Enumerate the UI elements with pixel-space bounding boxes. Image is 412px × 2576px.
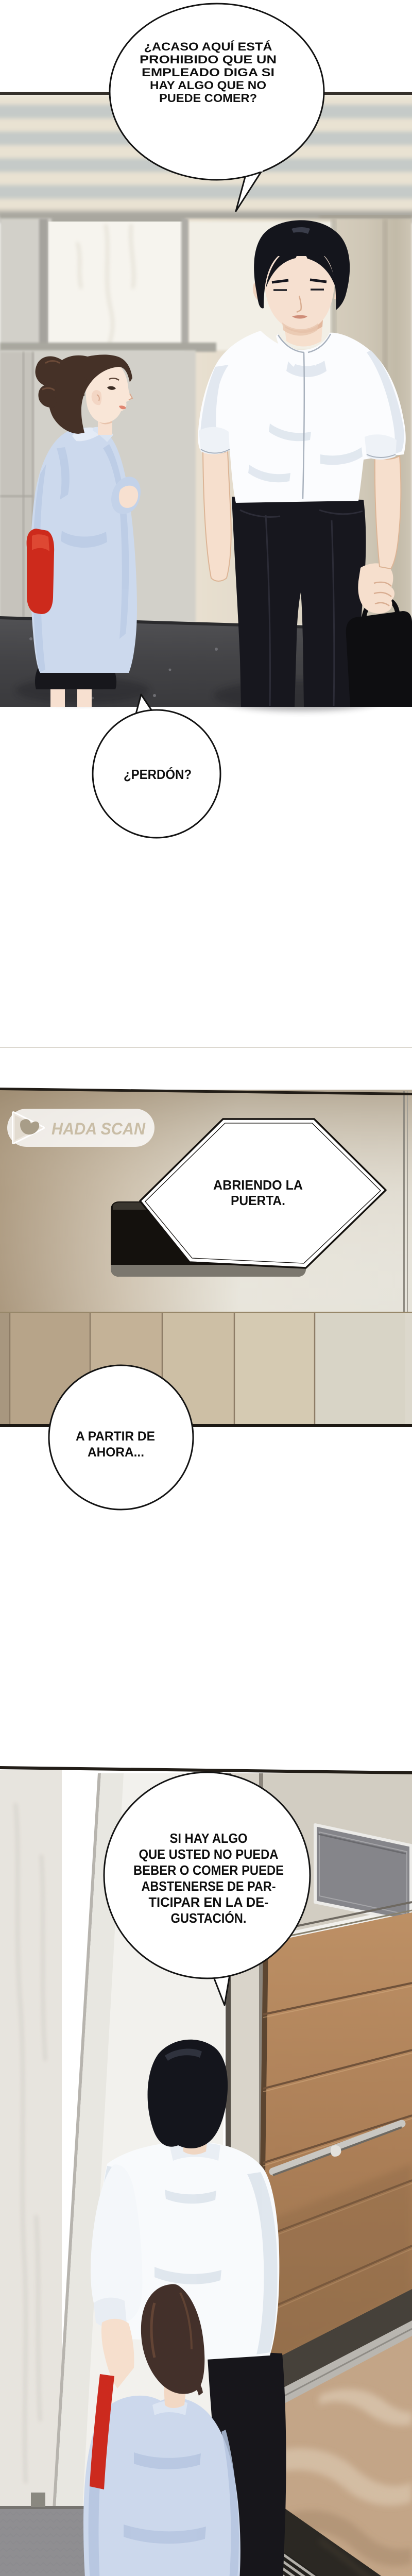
svg-text:HAY ALGO QUE NO: HAY ALGO QUE NO: [150, 79, 266, 92]
svg-text:EMPLEADO DIGA SI: EMPLEADO DIGA SI: [142, 66, 274, 79]
svg-text:TICIPAR EN LA DE-: TICIPAR EN LA DE-: [149, 1894, 269, 1910]
svg-text:HADA SCAN: HADA SCAN: [51, 1120, 146, 1138]
svg-text:ABSTENERSE DE PAR-: ABSTENERSE DE PAR-: [142, 1878, 276, 1894]
svg-text:PROHIBIDO QUE UN: PROHIBIDO QUE UN: [140, 53, 277, 66]
svg-text:SI HAY ALGO: SI HAY ALGO: [170, 1831, 248, 1846]
svg-text:ABRIENDO LA: ABRIENDO LA: [213, 1177, 303, 1193]
svg-text:¿PERDÓN?: ¿PERDÓN?: [124, 767, 192, 782]
svg-text:A PARTIR DE: A PARTIR DE: [76, 1429, 155, 1444]
svg-text:BEBER O COMER PUEDE: BEBER O COMER PUEDE: [133, 1862, 284, 1878]
svg-text:QUE USTED NO PUEDA: QUE USTED NO PUEDA: [139, 1846, 279, 1862]
svg-text:PUEDE COMER?: PUEDE COMER?: [159, 92, 257, 105]
svg-text:GUSTACIÓN.: GUSTACIÓN.: [171, 1910, 247, 1926]
svg-text:AHORA...: AHORA...: [88, 1445, 144, 1460]
svg-text:¿ACASO AQUÍ ESTÁ: ¿ACASO AQUÍ ESTÁ: [144, 40, 272, 53]
svg-text:PUERTA.: PUERTA.: [231, 1193, 285, 1208]
